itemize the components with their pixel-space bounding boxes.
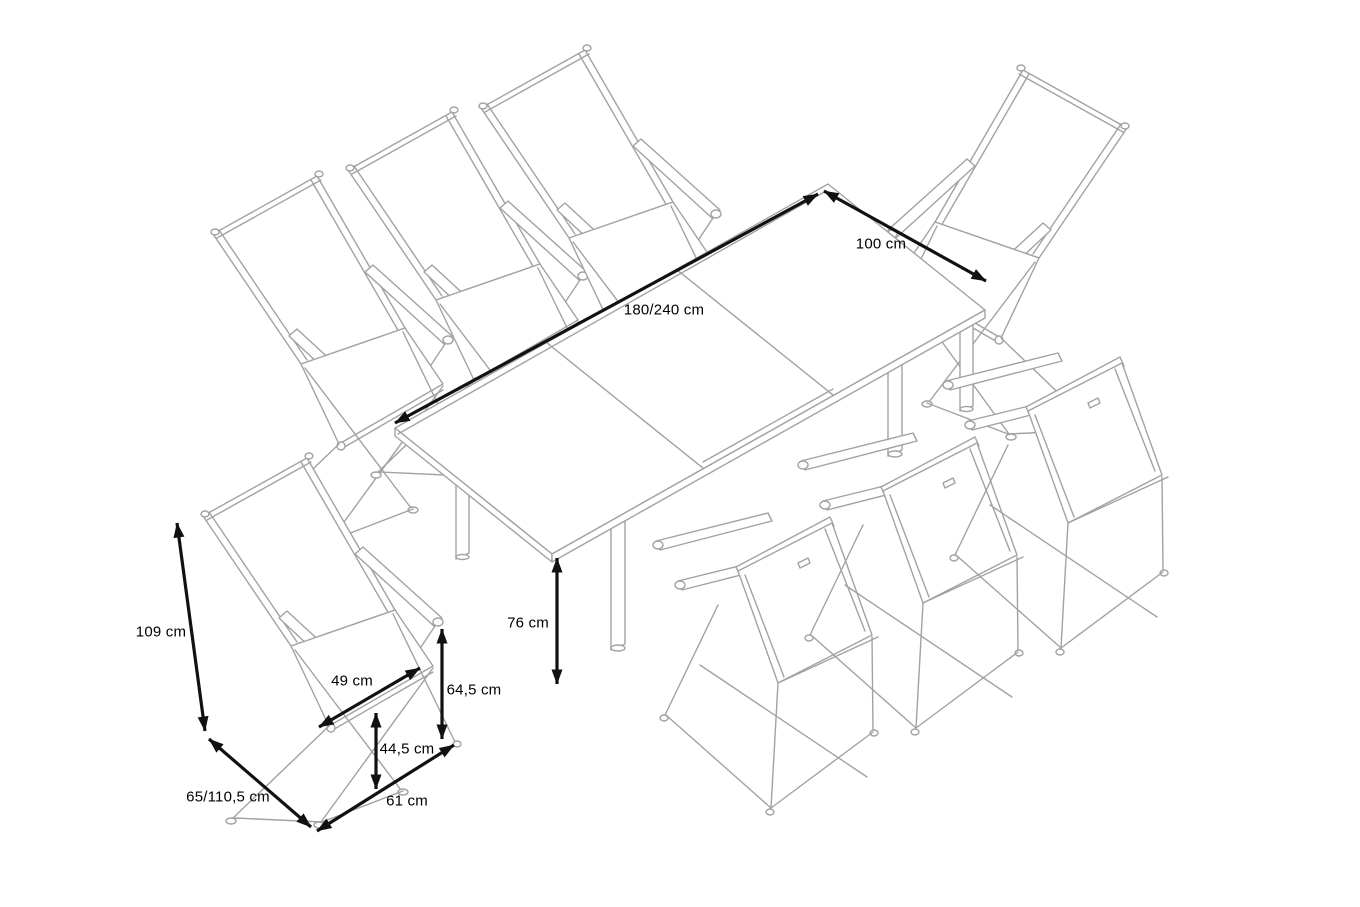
dimension-label-seat-height: 44,5 cm [380,741,435,758]
dimension-label-table-length: 180/240 cm [624,302,704,319]
dimension-label-chair-width: 61 cm [386,793,428,810]
dimension-label-chair-depth: 65/110,5 cm [186,789,270,806]
furniture-line-drawing [0,0,1360,907]
dimension-label-seat-width: 49 cm [331,673,373,690]
dimension-diagram: 180/240 cm 100 cm 76 cm 109 cm 49 cm 64,… [0,0,1360,907]
chair-isolated-dimensioned [201,453,461,828]
dimension-label-chair-height: 109 cm [136,624,186,641]
arrow-chair-width [317,745,454,831]
arrow-chair-depth [209,739,311,827]
dimension-label-table-width: 100 cm [856,236,906,253]
dimension-label-armrest-height: 64,5 cm [447,682,502,699]
dimension-label-table-height: 76 cm [507,615,549,632]
